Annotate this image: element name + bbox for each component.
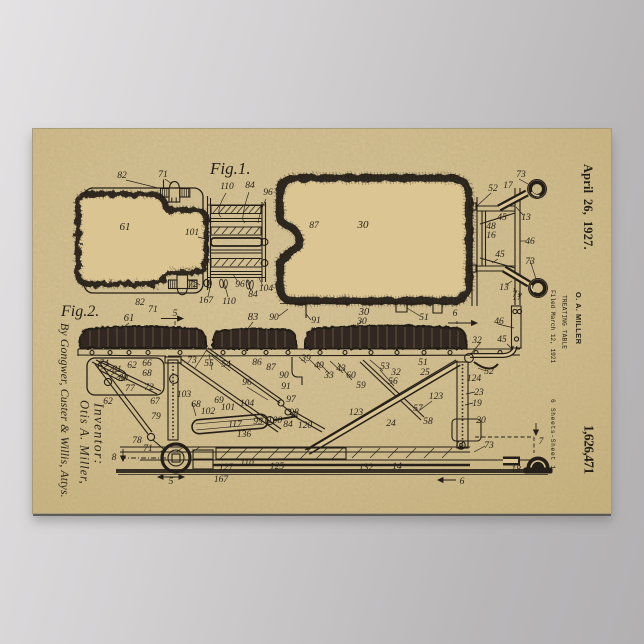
svg-text:45: 45 [497, 335, 507, 345]
svg-text:17: 17 [512, 293, 523, 303]
svg-text:1,626,471: 1,626,471 [582, 425, 597, 474]
svg-text:96: 96 [242, 378, 252, 388]
svg-text:74: 74 [99, 359, 109, 369]
svg-text:45: 45 [497, 213, 507, 223]
svg-text:45: 45 [495, 250, 505, 260]
svg-text:16: 16 [486, 231, 496, 241]
svg-text:51: 51 [418, 358, 428, 368]
svg-text:87: 87 [309, 221, 320, 231]
svg-text:32: 32 [390, 368, 401, 378]
svg-text:25: 25 [420, 368, 430, 378]
svg-text:TREATING TABLE: TREATING TABLE [561, 295, 568, 349]
svg-text:18: 18 [511, 465, 521, 475]
svg-text:52: 52 [484, 367, 494, 377]
svg-text:72: 72 [144, 383, 154, 393]
svg-text:120: 120 [298, 421, 313, 431]
svg-text:73: 73 [516, 170, 526, 180]
svg-text:79: 79 [151, 412, 161, 422]
svg-text:91: 91 [311, 316, 321, 326]
svg-text:127: 127 [219, 463, 235, 473]
svg-text:123: 123 [429, 392, 444, 402]
svg-text:83: 83 [248, 312, 259, 323]
svg-text:72: 72 [188, 280, 198, 290]
svg-text:20: 20 [476, 416, 486, 426]
svg-text:30: 30 [358, 307, 370, 318]
svg-text:101: 101 [221, 403, 235, 413]
svg-text:6: 6 [453, 309, 458, 319]
svg-text:90: 90 [279, 371, 289, 381]
svg-text:23: 23 [474, 388, 484, 398]
svg-text:167: 167 [199, 296, 215, 306]
svg-text:110: 110 [240, 459, 254, 469]
svg-text:52: 52 [488, 184, 498, 194]
svg-text:13: 13 [499, 283, 509, 293]
svg-text:Filed March 12, 1921: Filed March 12, 1921 [549, 290, 556, 363]
svg-text:Fig.1.: Fig.1. [209, 159, 251, 178]
svg-text:67: 67 [150, 397, 161, 407]
svg-text:53: 53 [380, 362, 390, 372]
svg-text:99: 99 [253, 417, 263, 427]
svg-text:56: 56 [388, 377, 398, 387]
svg-text:104: 104 [259, 284, 274, 294]
svg-text:96: 96 [263, 188, 273, 198]
svg-text:104: 104 [240, 399, 255, 409]
svg-text:103: 103 [177, 390, 192, 400]
svg-text:71: 71 [158, 170, 168, 180]
svg-text:57: 57 [413, 404, 424, 414]
svg-text:98: 98 [289, 408, 299, 418]
svg-text:87: 87 [266, 363, 277, 373]
svg-text:132: 132 [359, 463, 374, 473]
svg-text:68: 68 [142, 369, 152, 379]
svg-text:5: 5 [173, 309, 178, 319]
svg-text:April 26, 1927.: April 26, 1927. [581, 164, 595, 250]
svg-text:8: 8 [112, 453, 117, 463]
svg-text:102: 102 [201, 407, 216, 417]
svg-text:5: 5 [169, 477, 174, 487]
svg-text:43: 43 [336, 364, 346, 374]
svg-text:117: 117 [228, 420, 243, 430]
svg-text:62: 62 [103, 397, 113, 407]
svg-text:59: 59 [356, 381, 366, 391]
svg-text:51: 51 [419, 313, 429, 323]
svg-text:32: 32 [471, 336, 482, 346]
svg-text:167: 167 [214, 475, 230, 485]
svg-text:84: 84 [248, 290, 258, 300]
svg-text:110: 110 [222, 297, 236, 307]
svg-text:Fig.2.: Fig.2. [60, 303, 99, 320]
svg-text:82: 82 [135, 298, 145, 308]
svg-text:46: 46 [494, 317, 504, 327]
svg-text:124: 124 [467, 374, 482, 384]
svg-text:84: 84 [283, 420, 293, 430]
svg-text:100: 100 [268, 416, 283, 426]
svg-text:97: 97 [286, 395, 297, 405]
svg-text:17: 17 [503, 181, 514, 191]
svg-text:86: 86 [252, 358, 262, 368]
svg-text:46: 46 [525, 237, 535, 247]
svg-text:66: 66 [142, 359, 152, 369]
svg-text:136: 136 [237, 430, 252, 440]
svg-text:60: 60 [346, 371, 356, 381]
svg-text:110: 110 [220, 182, 234, 192]
svg-text:55: 55 [204, 359, 214, 369]
svg-text:6: 6 [460, 477, 465, 487]
svg-text:Inventor:: Inventor: [92, 402, 107, 465]
svg-text:Otis A. Miller,: Otis A. Miller, [78, 400, 92, 485]
svg-text:30: 30 [356, 317, 367, 327]
svg-text:90: 90 [269, 313, 279, 323]
svg-text:62: 62 [127, 361, 137, 371]
svg-text:82: 82 [117, 171, 127, 181]
svg-text:14: 14 [392, 462, 402, 472]
svg-text:101: 101 [185, 228, 199, 238]
svg-text:78: 78 [132, 436, 142, 446]
svg-text:By Gongwer, Custer & Willis, A: By Gongwer, Custer & Willis, Attys. [58, 323, 72, 498]
svg-text:123: 123 [349, 408, 364, 418]
svg-text:84: 84 [245, 181, 255, 191]
svg-text:91: 91 [281, 382, 291, 392]
svg-text:73: 73 [484, 441, 494, 451]
svg-text:96: 96 [235, 280, 245, 290]
svg-text:30: 30 [357, 219, 370, 231]
svg-text:80: 80 [118, 374, 128, 384]
svg-text:O. A. MILLER: O. A. MILLER [574, 292, 583, 345]
svg-text:58: 58 [423, 417, 433, 427]
svg-text:73: 73 [187, 356, 197, 366]
svg-text:19: 19 [472, 399, 482, 409]
svg-text:77: 77 [125, 384, 136, 394]
svg-text:24: 24 [386, 419, 396, 429]
svg-text:71: 71 [148, 305, 158, 315]
svg-text:61: 61 [120, 221, 131, 233]
svg-text:73: 73 [525, 257, 535, 267]
svg-text:61: 61 [124, 313, 135, 324]
svg-text:71: 71 [143, 444, 153, 454]
svg-text:125: 125 [270, 462, 285, 472]
svg-text:6 Sheets-Sheet 1: 6 Sheets-Sheet 1 [549, 399, 556, 470]
